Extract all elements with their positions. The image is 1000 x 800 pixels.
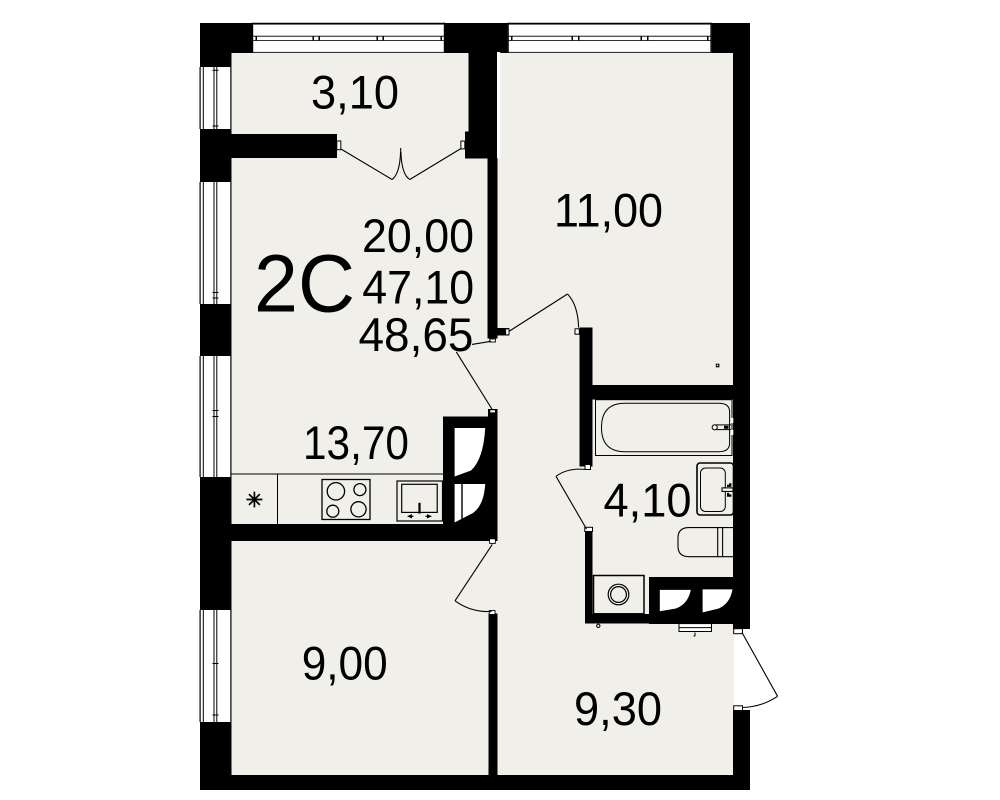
svg-text:13,70: 13,70 (303, 416, 409, 469)
svg-text:9,30: 9,30 (574, 682, 662, 735)
svg-text:2C: 2C (254, 239, 355, 330)
svg-text:4,10: 4,10 (604, 474, 692, 527)
svg-text:3,10: 3,10 (311, 66, 399, 119)
svg-text:11,00: 11,00 (554, 184, 663, 237)
svg-text:20,00: 20,00 (362, 209, 474, 262)
svg-text:48,65: 48,65 (359, 308, 474, 361)
svg-text:47,10: 47,10 (362, 261, 474, 314)
svg-text:9,00: 9,00 (302, 637, 388, 690)
